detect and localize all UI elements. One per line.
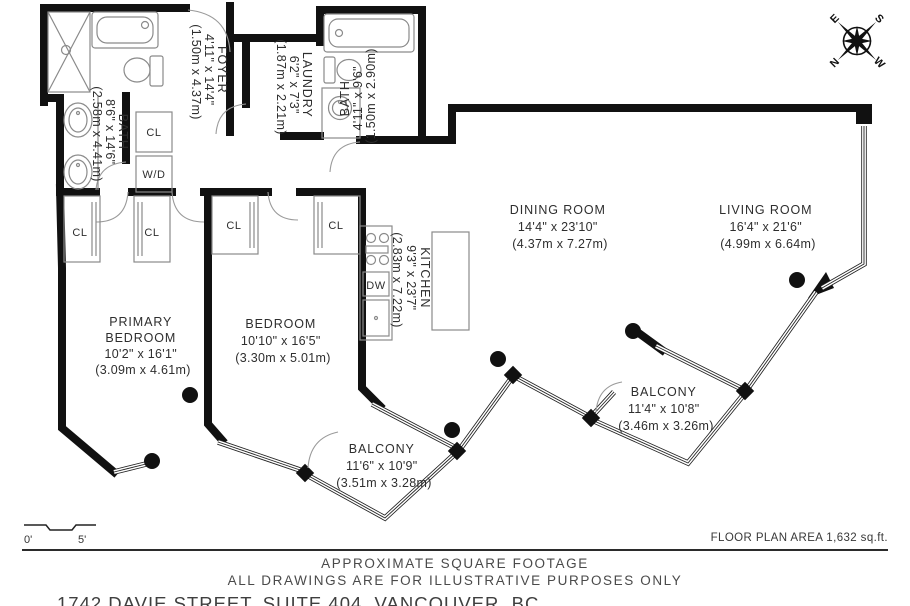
room-labels: PRIMARY BEDROOM 10'2" x 16'1" (3.09m x 4… bbox=[90, 24, 817, 490]
footer-line2: ALL DRAWINGS ARE FOR ILLUSTRATIVE PURPOS… bbox=[228, 573, 683, 588]
property-address: 1742 DAVIE STREET, SUITE 404, VANCOUVER,… bbox=[57, 593, 539, 606]
stove-icon bbox=[366, 234, 389, 265]
wall-end-block bbox=[856, 104, 872, 124]
bathtub-icon bbox=[92, 12, 158, 48]
kitchen-island bbox=[432, 232, 469, 330]
room-label-primary-bedroom: PRIMARY BEDROOM 10'2" x 16'1" (3.09m x 4… bbox=[95, 313, 191, 377]
room-label-balcony-west: BALCONY 11'6" x 10'9" (3.51m x 3.28m) bbox=[336, 440, 432, 490]
closet-label: CL bbox=[72, 227, 87, 239]
toilet-icon bbox=[124, 56, 163, 86]
bathtub-second-icon bbox=[324, 14, 414, 52]
room-label-living-room: LIVING ROOM 16'4" x 21'6" (4.99m x 6.64m… bbox=[719, 201, 817, 251]
compass-star bbox=[838, 22, 876, 60]
washer-dryer-label: W/D bbox=[142, 169, 165, 181]
scale-start-label: 0' bbox=[24, 534, 32, 546]
room-label-dining-room: DINING ROOM 14'4" x 23'10" (4.37m x 7.27… bbox=[510, 201, 610, 251]
shower-icon bbox=[48, 12, 90, 92]
room-label-foyer: FOYER 4'11" x 14'4" (1.50m x 4.37m) bbox=[189, 24, 231, 120]
window-walls bbox=[114, 126, 864, 518]
scale-end-label: 5' bbox=[78, 534, 86, 546]
closet-label: CL bbox=[146, 127, 161, 139]
fridge-icon bbox=[363, 300, 389, 336]
closet-label: CL bbox=[144, 227, 159, 239]
room-label-laundry: LAUNDRY 6'2" x 7'3" (1.87m x 2.21m) bbox=[274, 39, 316, 135]
closet-label: CL bbox=[328, 220, 343, 232]
floor-plan-drawing: PRIMARY BEDROOM 10'2" x 16'1" (3.09m x 4… bbox=[0, 0, 910, 606]
room-label-bedroom: BEDROOM 10'10" x 16'5" (3.30m x 5.01m) bbox=[235, 315, 331, 365]
closet-label: CL bbox=[226, 220, 241, 232]
footer: FLOOR PLAN AREA 1,632 sq.ft. APPROXIMATE… bbox=[22, 532, 888, 606]
footer-line1: APPROXIMATE SQUARE FOOTAGE bbox=[321, 556, 589, 571]
room-label-kitchen: KITCHEN 9'3" x 23'7" (2.83m x 7.22m) bbox=[390, 232, 434, 328]
floor-plan-area-label: FLOOR PLAN AREA 1,632 sq.ft. bbox=[711, 532, 888, 544]
scale-bar: 0' 5' bbox=[24, 525, 96, 546]
dishwasher-label: DW bbox=[366, 280, 386, 292]
room-label-balcony-east: BALCONY 11'4" x 10'8" (3.46m x 3.26m) bbox=[618, 383, 714, 433]
compass-rose: E S N W bbox=[828, 12, 887, 71]
floor-plan-page: PRIMARY BEDROOM 10'2" x 16'1" (3.09m x 4… bbox=[0, 0, 910, 606]
room-label-bath-second: BATH 4'11" x 9'6" (1.50m x 2.90m) bbox=[336, 48, 378, 144]
footer-divider bbox=[22, 549, 888, 551]
